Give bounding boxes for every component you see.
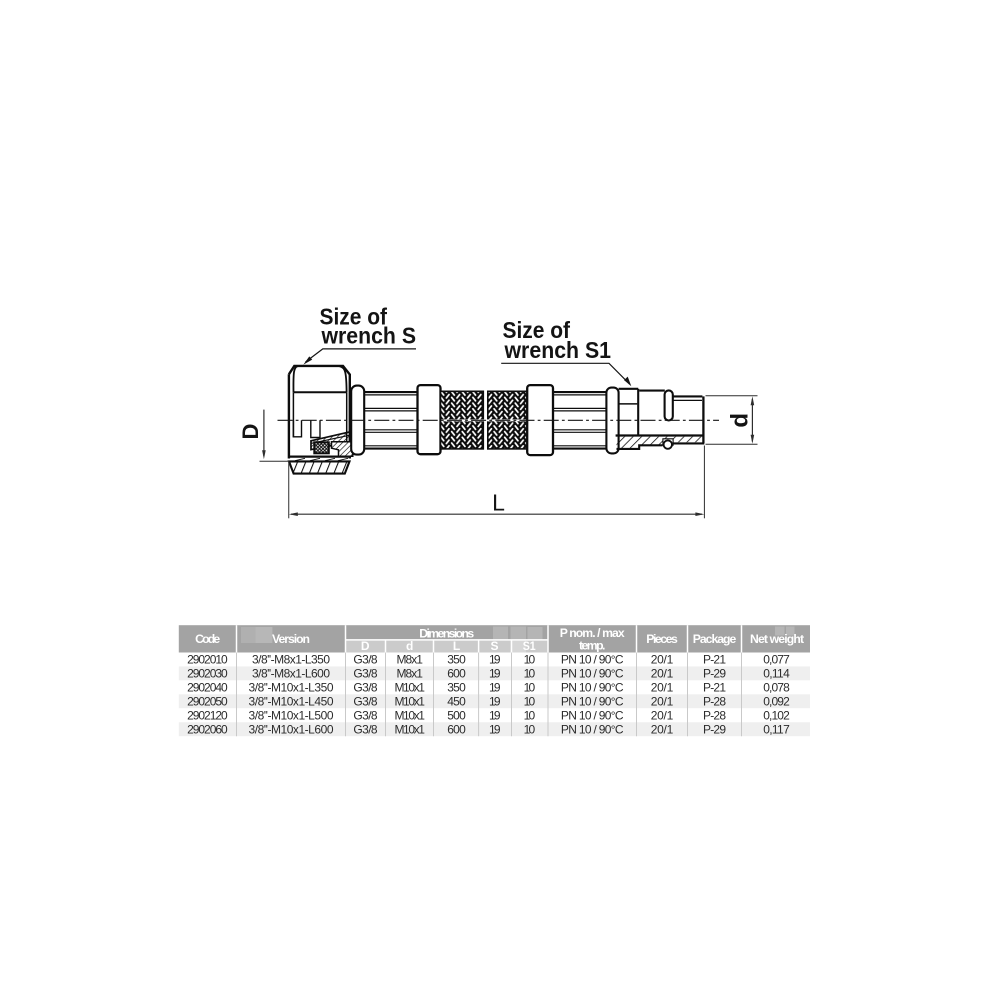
svg-text:Pieces: Pieces: [646, 632, 678, 646]
svg-text:Version: Version: [272, 632, 310, 646]
svg-text:G3/8: G3/8: [353, 722, 378, 736]
svg-text:PN 10 / 90°C: PN 10 / 90°C: [561, 708, 624, 722]
svg-text:3/8''-M10x1-L500: 3/8''-M10x1-L500: [249, 708, 334, 722]
svg-text:G3/8: G3/8: [353, 653, 378, 667]
svg-text:P-21: P-21: [703, 681, 726, 695]
svg-text:0,077: 0,077: [763, 653, 790, 667]
svg-text:2902050: 2902050: [187, 694, 228, 708]
svg-text:450: 450: [447, 694, 466, 708]
svg-text:20/1: 20/1: [651, 694, 674, 708]
svg-text:600: 600: [447, 667, 466, 681]
svg-text:2902030: 2902030: [187, 667, 228, 681]
svg-text:L: L: [453, 639, 460, 653]
svg-text:20/1: 20/1: [651, 681, 674, 695]
svg-text:D: D: [361, 639, 370, 653]
svg-text:PN 10 / 90°C: PN 10 / 90°C: [561, 722, 624, 736]
svg-text:temp.: temp.: [579, 638, 606, 652]
svg-text:10: 10: [524, 667, 536, 681]
svg-text:3/8''-M10x1-L450: 3/8''-M10x1-L450: [249, 694, 334, 708]
svg-text:0,114: 0,114: [763, 667, 790, 681]
svg-text:Code: Code: [195, 632, 220, 646]
svg-text:0,117: 0,117: [763, 722, 790, 736]
svg-text:d: d: [727, 413, 754, 428]
svg-text:19: 19: [489, 722, 501, 736]
svg-text:3/8''-M8x1-L600: 3/8''-M8x1-L600: [252, 667, 330, 681]
svg-text:19: 19: [489, 708, 501, 722]
svg-text:2902010: 2902010: [187, 653, 228, 667]
svg-text:350: 350: [447, 653, 466, 667]
svg-text:d: d: [406, 639, 413, 653]
svg-text:P-28: P-28: [703, 694, 726, 708]
svg-text:M10x1: M10x1: [394, 681, 425, 695]
svg-text:0,102: 0,102: [763, 708, 790, 722]
svg-text:D: D: [238, 424, 263, 440]
svg-text:G3/8: G3/8: [353, 708, 378, 722]
svg-text:350: 350: [447, 681, 466, 695]
svg-text:M10x1: M10x1: [394, 694, 425, 708]
svg-text:10: 10: [524, 722, 536, 736]
svg-text:L: L: [492, 490, 505, 516]
svg-text:wrench S: wrench S: [321, 323, 416, 349]
svg-text:Package: Package: [693, 632, 737, 646]
svg-text:Net weight: Net weight: [750, 632, 804, 646]
svg-text:20/1: 20/1: [651, 653, 674, 667]
svg-text:0,092: 0,092: [763, 694, 790, 708]
svg-text:19: 19: [489, 653, 501, 667]
svg-text:3/8''-M10x1-L600: 3/8''-M10x1-L600: [249, 722, 334, 736]
svg-text:0,078: 0,078: [763, 681, 790, 695]
svg-text:500: 500: [447, 708, 466, 722]
svg-text:PN 10 / 90°C: PN 10 / 90°C: [561, 653, 624, 667]
svg-text:P-28: P-28: [703, 708, 726, 722]
svg-text:G3/8: G3/8: [353, 694, 378, 708]
svg-text:PN 10 / 90°C: PN 10 / 90°C: [561, 694, 624, 708]
svg-text:19: 19: [489, 681, 501, 695]
svg-text:20/1: 20/1: [651, 722, 674, 736]
svg-text:2902060: 2902060: [187, 722, 228, 736]
svg-text:10: 10: [524, 653, 536, 667]
svg-text:S: S: [490, 639, 498, 653]
svg-text:M8x1: M8x1: [397, 653, 424, 667]
svg-text:3/8''-M8x1-L350: 3/8''-M8x1-L350: [252, 653, 330, 667]
svg-text:G3/8: G3/8: [353, 667, 378, 681]
svg-text:G3/8: G3/8: [353, 681, 378, 695]
svg-text:Dimensions: Dimensions: [419, 626, 474, 640]
svg-text:600: 600: [447, 722, 466, 736]
svg-text:2902040: 2902040: [187, 681, 228, 695]
svg-text:10: 10: [524, 694, 536, 708]
svg-text:2902120: 2902120: [187, 708, 228, 722]
svg-text:PN 10 / 90°C: PN 10 / 90°C: [561, 667, 624, 681]
svg-text:P-29: P-29: [703, 667, 726, 681]
svg-text:wrench S1: wrench S1: [504, 337, 612, 363]
svg-text:3/8''-M10x1-L350: 3/8''-M10x1-L350: [249, 681, 334, 695]
svg-text:19: 19: [489, 667, 501, 681]
svg-text:M10x1: M10x1: [394, 708, 425, 722]
svg-text:20/1: 20/1: [651, 667, 674, 681]
svg-text:P-29: P-29: [703, 722, 726, 736]
svg-text:10: 10: [524, 708, 536, 722]
svg-text:S1: S1: [523, 639, 536, 653]
svg-text:PN 10 / 90°C: PN 10 / 90°C: [561, 681, 624, 695]
svg-text:19: 19: [489, 694, 501, 708]
svg-text:M10x1: M10x1: [394, 722, 425, 736]
svg-text:M8x1: M8x1: [397, 667, 424, 681]
svg-text:10: 10: [524, 681, 536, 695]
svg-text:P-21: P-21: [703, 653, 726, 667]
svg-text:20/1: 20/1: [651, 708, 674, 722]
